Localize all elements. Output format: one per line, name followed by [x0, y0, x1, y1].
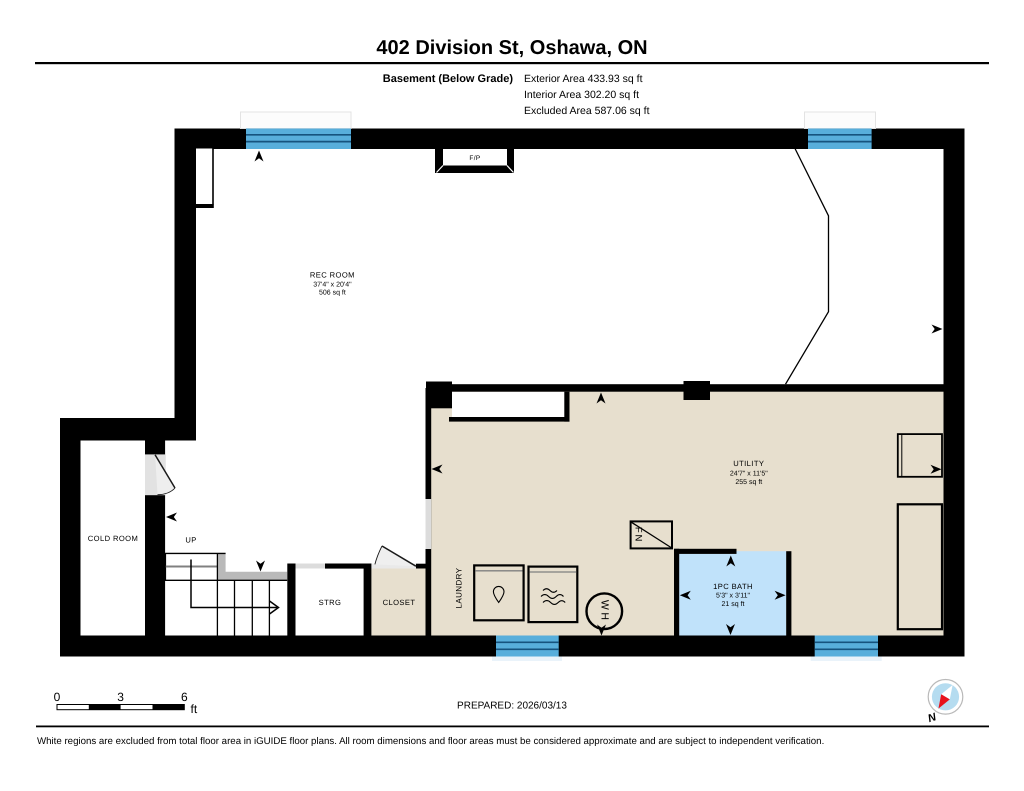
svg-text:Basement (Below Grade): Basement (Below Grade) — [383, 73, 514, 85]
svg-text:FN: FN — [633, 527, 644, 543]
svg-text:UTILITY: UTILITY — [733, 459, 764, 468]
svg-text:Exterior Area 433.93 sq ft: Exterior Area 433.93 sq ft — [524, 73, 643, 85]
svg-text:255 sq ft: 255 sq ft — [735, 478, 762, 486]
svg-text:37'4" x 20'4": 37'4" x 20'4" — [313, 281, 352, 288]
svg-text:6: 6 — [181, 690, 188, 704]
svg-text:506 sq ft: 506 sq ft — [319, 289, 346, 297]
svg-text:PREPARED: 2026/03/13: PREPARED: 2026/03/13 — [457, 701, 567, 712]
svg-text:21 sq ft: 21 sq ft — [722, 600, 745, 608]
svg-text:Excluded Area 587.06 sq ft: Excluded Area 587.06 sq ft — [524, 105, 650, 117]
svg-text:WH: WH — [598, 600, 610, 623]
svg-text:COLD ROOM: COLD ROOM — [88, 534, 138, 543]
svg-text:ft: ft — [191, 702, 198, 716]
svg-text:UP: UP — [185, 536, 196, 545]
svg-text:3: 3 — [117, 690, 124, 704]
svg-text:LAUNDRY: LAUNDRY — [455, 567, 464, 608]
svg-text:White regions are excluded fro: White regions are excluded from total fl… — [37, 736, 824, 747]
svg-text:Interior Area 302.20 sq ft: Interior Area 302.20 sq ft — [524, 89, 639, 101]
svg-text:5'3" x 3'11": 5'3" x 3'11" — [716, 593, 750, 600]
svg-text:STRG: STRG — [319, 598, 342, 607]
svg-text:24'7" x 11'5": 24'7" x 11'5" — [730, 470, 768, 477]
svg-text:REC ROOM: REC ROOM — [310, 271, 355, 280]
svg-text:F/P: F/P — [469, 155, 480, 162]
svg-text:0: 0 — [54, 690, 61, 704]
svg-text:CLOSET: CLOSET — [383, 598, 416, 607]
svg-text:1PC BATH: 1PC BATH — [713, 582, 753, 591]
svg-text:402 Division St, Oshawa, ON: 402 Division St, Oshawa, ON — [376, 37, 647, 59]
